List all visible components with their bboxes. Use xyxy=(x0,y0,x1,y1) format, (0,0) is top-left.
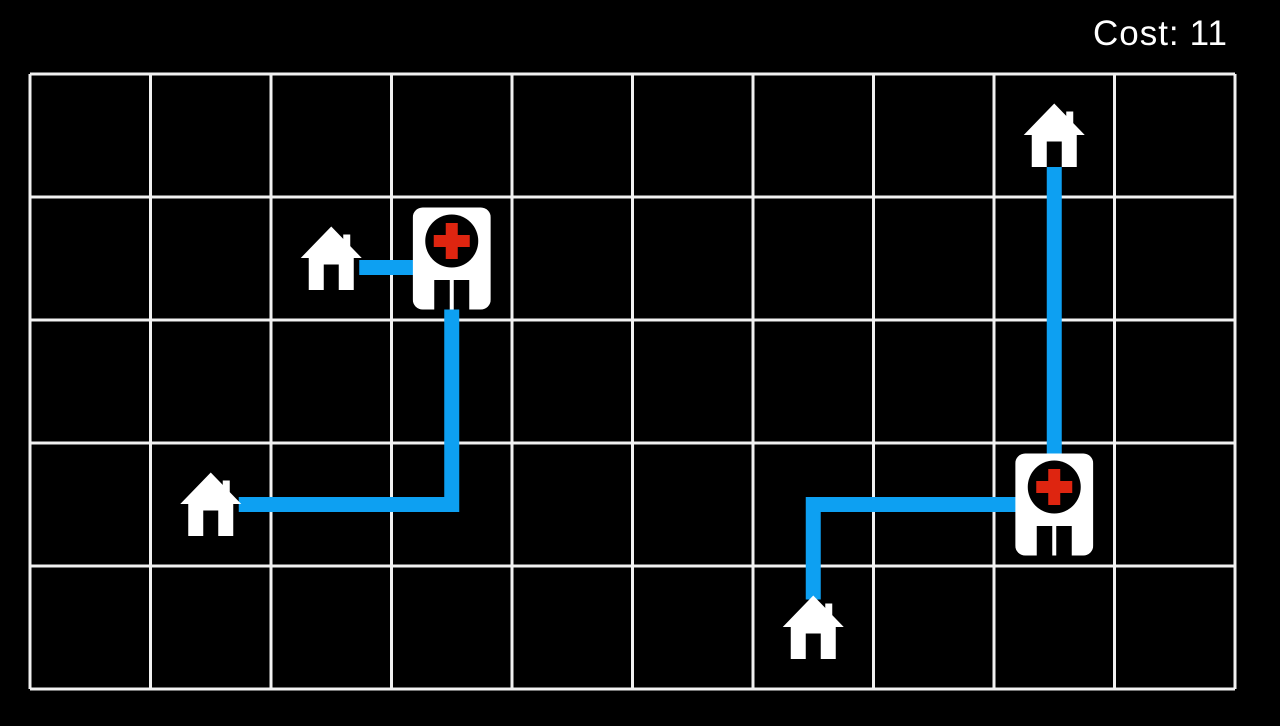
hospital-2[interactable] xyxy=(1015,454,1093,556)
hospital-1[interactable] xyxy=(413,208,491,310)
grid-board[interactable] xyxy=(0,0,1280,726)
house-1[interactable] xyxy=(301,227,362,291)
house-2[interactable] xyxy=(180,473,241,537)
board-icons xyxy=(180,104,1093,660)
game-stage: Cost: 11 xyxy=(0,0,1280,726)
house-4[interactable] xyxy=(1024,104,1085,168)
house-3[interactable] xyxy=(783,596,844,660)
route-paths xyxy=(239,164,1055,600)
